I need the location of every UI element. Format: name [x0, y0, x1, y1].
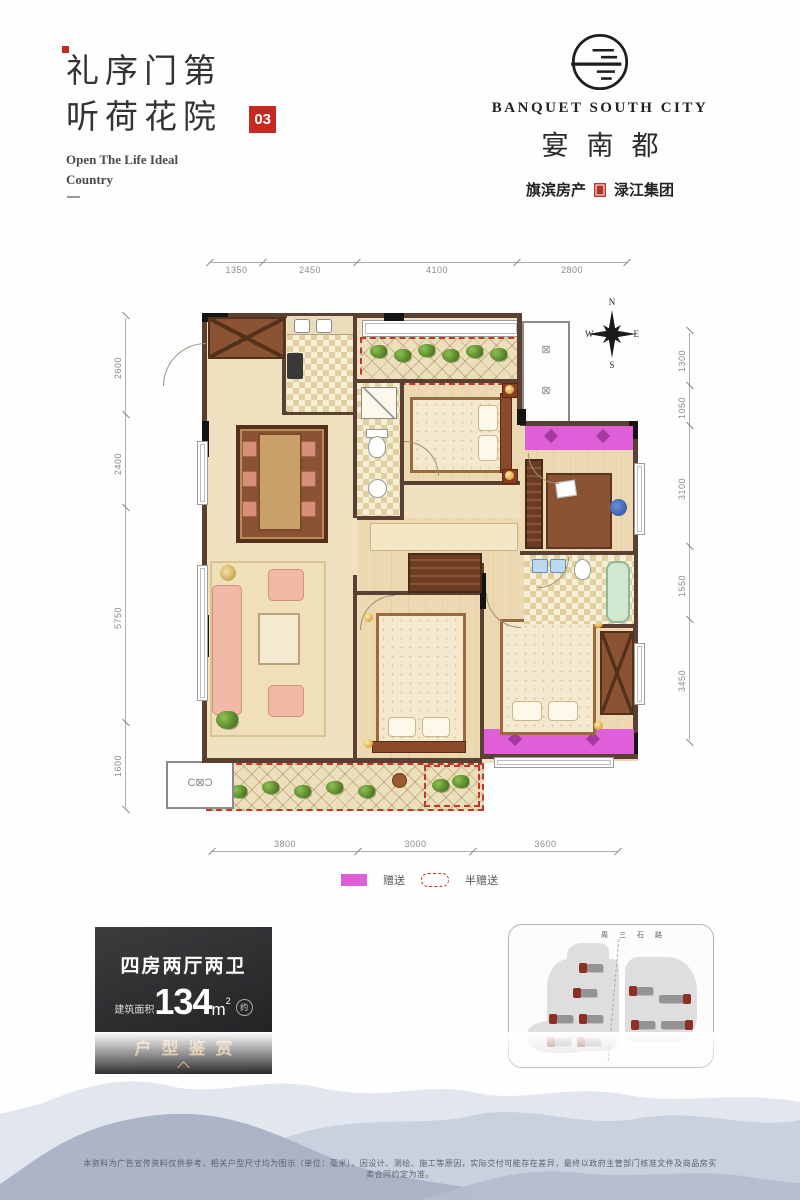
- developer-left: 旗滨房产: [526, 179, 586, 200]
- dim-chain-top: 1350 2450 4100 2800: [210, 256, 627, 276]
- pillow: [422, 717, 450, 737]
- dim-seg: 1350: [210, 256, 263, 276]
- ac-unit-icon: ⊠: [524, 345, 568, 356]
- dim-seg: 2800: [517, 256, 627, 276]
- ac-unit-icon: ⊠: [524, 386, 568, 397]
- gift-swatch: [341, 874, 367, 886]
- wall: [357, 516, 404, 520]
- area-value: 134: [154, 984, 211, 1020]
- developer-line: 旗滨房产 渌江集团: [450, 179, 750, 200]
- disclaimer-text: 本资料为广告宣传资料仅供参考，相关户型尺寸均为图示（单位：毫米），因设计、测绘、…: [80, 1158, 720, 1180]
- dining-chair: [301, 441, 316, 457]
- area-unit: m: [211, 1001, 225, 1018]
- plant: [358, 785, 375, 798]
- plant: [262, 781, 279, 794]
- floor-plan: ⊠ ⊠ C⊠Ɔ: [178, 313, 644, 813]
- equipment-platform-bottom: C⊠Ɔ: [166, 761, 234, 809]
- site-building: [659, 995, 689, 1003]
- study-chair: [610, 499, 627, 516]
- dim-seg: 1600: [112, 725, 132, 807]
- plant: [216, 711, 238, 729]
- lamp: [505, 471, 514, 480]
- bedroom1-headboard: [500, 393, 512, 473]
- site-building: [661, 1021, 691, 1029]
- dim-seg: 2600: [112, 318, 132, 417]
- master-wardrobe: [600, 631, 634, 715]
- bedroom2-headboard: [372, 741, 466, 753]
- site-building: [633, 1021, 655, 1029]
- plant: [394, 349, 411, 362]
- column: [517, 409, 526, 425]
- kitchen-stove: [287, 353, 303, 379]
- plant: [370, 345, 387, 358]
- dining-chair: [242, 501, 257, 517]
- unit-number-badge: 03: [249, 106, 276, 133]
- armchair: [268, 685, 304, 717]
- plant: [452, 775, 469, 788]
- window-study: [634, 463, 645, 535]
- lamp: [594, 721, 603, 730]
- dim-seg: 5750: [112, 510, 132, 725]
- dim-seg: 3450: [676, 622, 696, 740]
- plant: [432, 779, 449, 792]
- title-line-1: 礼序门第: [66, 48, 276, 94]
- wall: [202, 758, 482, 763]
- dining-chair: [301, 471, 316, 487]
- plant: [326, 781, 343, 794]
- plant: [418, 344, 435, 357]
- bath1-sink: [368, 479, 387, 498]
- plant: [294, 785, 311, 798]
- dim-chain-bottom: 3800 3000 3600: [212, 838, 618, 858]
- dining-chair: [301, 501, 316, 517]
- wall: [353, 575, 357, 763]
- pillow: [478, 405, 498, 431]
- hall-wardrobe: [408, 553, 482, 593]
- unit-area: 建筑面积 134 m 2 约: [95, 984, 272, 1020]
- armchair: [268, 569, 304, 601]
- plant: [442, 349, 459, 362]
- subtitle-line-2: Country: [66, 170, 178, 190]
- window-master-side: [634, 643, 645, 705]
- pillow: [548, 701, 578, 721]
- dim-seg: 1550: [676, 549, 696, 622]
- kitchen-sink: [316, 319, 332, 333]
- lamp: [364, 739, 373, 748]
- dim-chain-right: 1300 1050 3100 1550 3450: [676, 333, 696, 740]
- door-arc-entry: [163, 343, 206, 386]
- title-line-2-text: 听荷花院: [66, 98, 222, 135]
- dim-seg: 1300: [676, 333, 696, 388]
- subtitle-dash: [67, 196, 80, 198]
- pillow: [388, 717, 416, 737]
- balcony-top-half-gift: [360, 337, 524, 385]
- site-building: [631, 987, 653, 995]
- developer-right: 渌江集团: [614, 179, 674, 200]
- dim-seg: 2450: [263, 256, 357, 276]
- window-living: [197, 565, 208, 701]
- equipment-icon: C⊠Ɔ: [168, 778, 232, 789]
- pillow: [512, 701, 542, 721]
- title-line-2: 听荷花院 03: [66, 94, 276, 140]
- gift-strip-study: [525, 426, 633, 450]
- area-prefix: 建筑面积: [114, 1006, 154, 1016]
- dim-seg: 3800: [212, 838, 358, 858]
- dim-seg: 3000: [358, 838, 473, 858]
- area-sup: 2: [226, 997, 231, 1006]
- plant: [490, 348, 507, 361]
- dining-chair: [242, 441, 257, 457]
- dim-chain-left: 2600 2400 5750 1600: [112, 318, 132, 807]
- site-building: [581, 1015, 603, 1023]
- sofa-main: [212, 585, 242, 715]
- gift-label: 赠送: [383, 872, 405, 888]
- dim-seg: 3100: [676, 428, 696, 549]
- hall-rug: [370, 523, 518, 551]
- site-building: [575, 989, 597, 997]
- brand-block: BANQUET SOUTH CITY 宴南都 旗滨房产 渌江集团: [450, 30, 750, 200]
- compass-n: N: [609, 297, 616, 307]
- brand-name-en: BANQUET SOUTH CITY: [450, 100, 750, 117]
- coffee-table: [258, 613, 300, 665]
- outdoor-table: [392, 773, 407, 788]
- pillow: [478, 435, 498, 461]
- brand-name-cn: 宴南都: [450, 124, 750, 163]
- toilet: [574, 559, 591, 580]
- subtitle-line-1: Open The Life Ideal: [66, 150, 178, 170]
- subtitle-en: Open The Life Ideal Country: [66, 150, 178, 190]
- site-road-label: 周三石路: [601, 930, 673, 940]
- window-master-bottom: [494, 757, 614, 768]
- plant: [466, 345, 483, 358]
- column: [384, 313, 404, 321]
- equipment-platform-top: ⊠ ⊠: [522, 321, 570, 423]
- developer-seal-icon: [594, 183, 606, 197]
- title-block: 礼序门第 听荷花院 03: [66, 48, 276, 140]
- area-approx-badge: 约: [236, 999, 253, 1016]
- side-table: [220, 565, 236, 581]
- dining-table: [258, 433, 302, 531]
- unit-layout: 四房两厅两卫: [95, 951, 272, 978]
- lamp: [505, 385, 514, 394]
- site-building: [581, 964, 603, 972]
- site-building: [551, 1015, 573, 1023]
- foyer-cabinet: [208, 317, 285, 359]
- window-top-balcony: [362, 320, 520, 337]
- bathtub: [606, 561, 630, 623]
- poster-canvas: 礼序门第 听荷花院 03 Open The Life Ideal Country…: [0, 0, 800, 1200]
- dining-chair: [242, 471, 257, 487]
- brand-logo-icon: [568, 30, 632, 94]
- half-gift-label: 半赠送: [465, 872, 498, 888]
- kitchen-sink: [294, 319, 310, 333]
- plan-legend: 赠送 半赠送: [341, 872, 498, 888]
- dim-seg: 2400: [112, 417, 132, 510]
- dim-seg: 4100: [357, 256, 517, 276]
- half-gift-swatch: [421, 873, 449, 887]
- shower: [361, 387, 397, 419]
- dim-seg: 3600: [473, 838, 618, 858]
- window-dining: [197, 441, 208, 505]
- toilet: [368, 436, 386, 458]
